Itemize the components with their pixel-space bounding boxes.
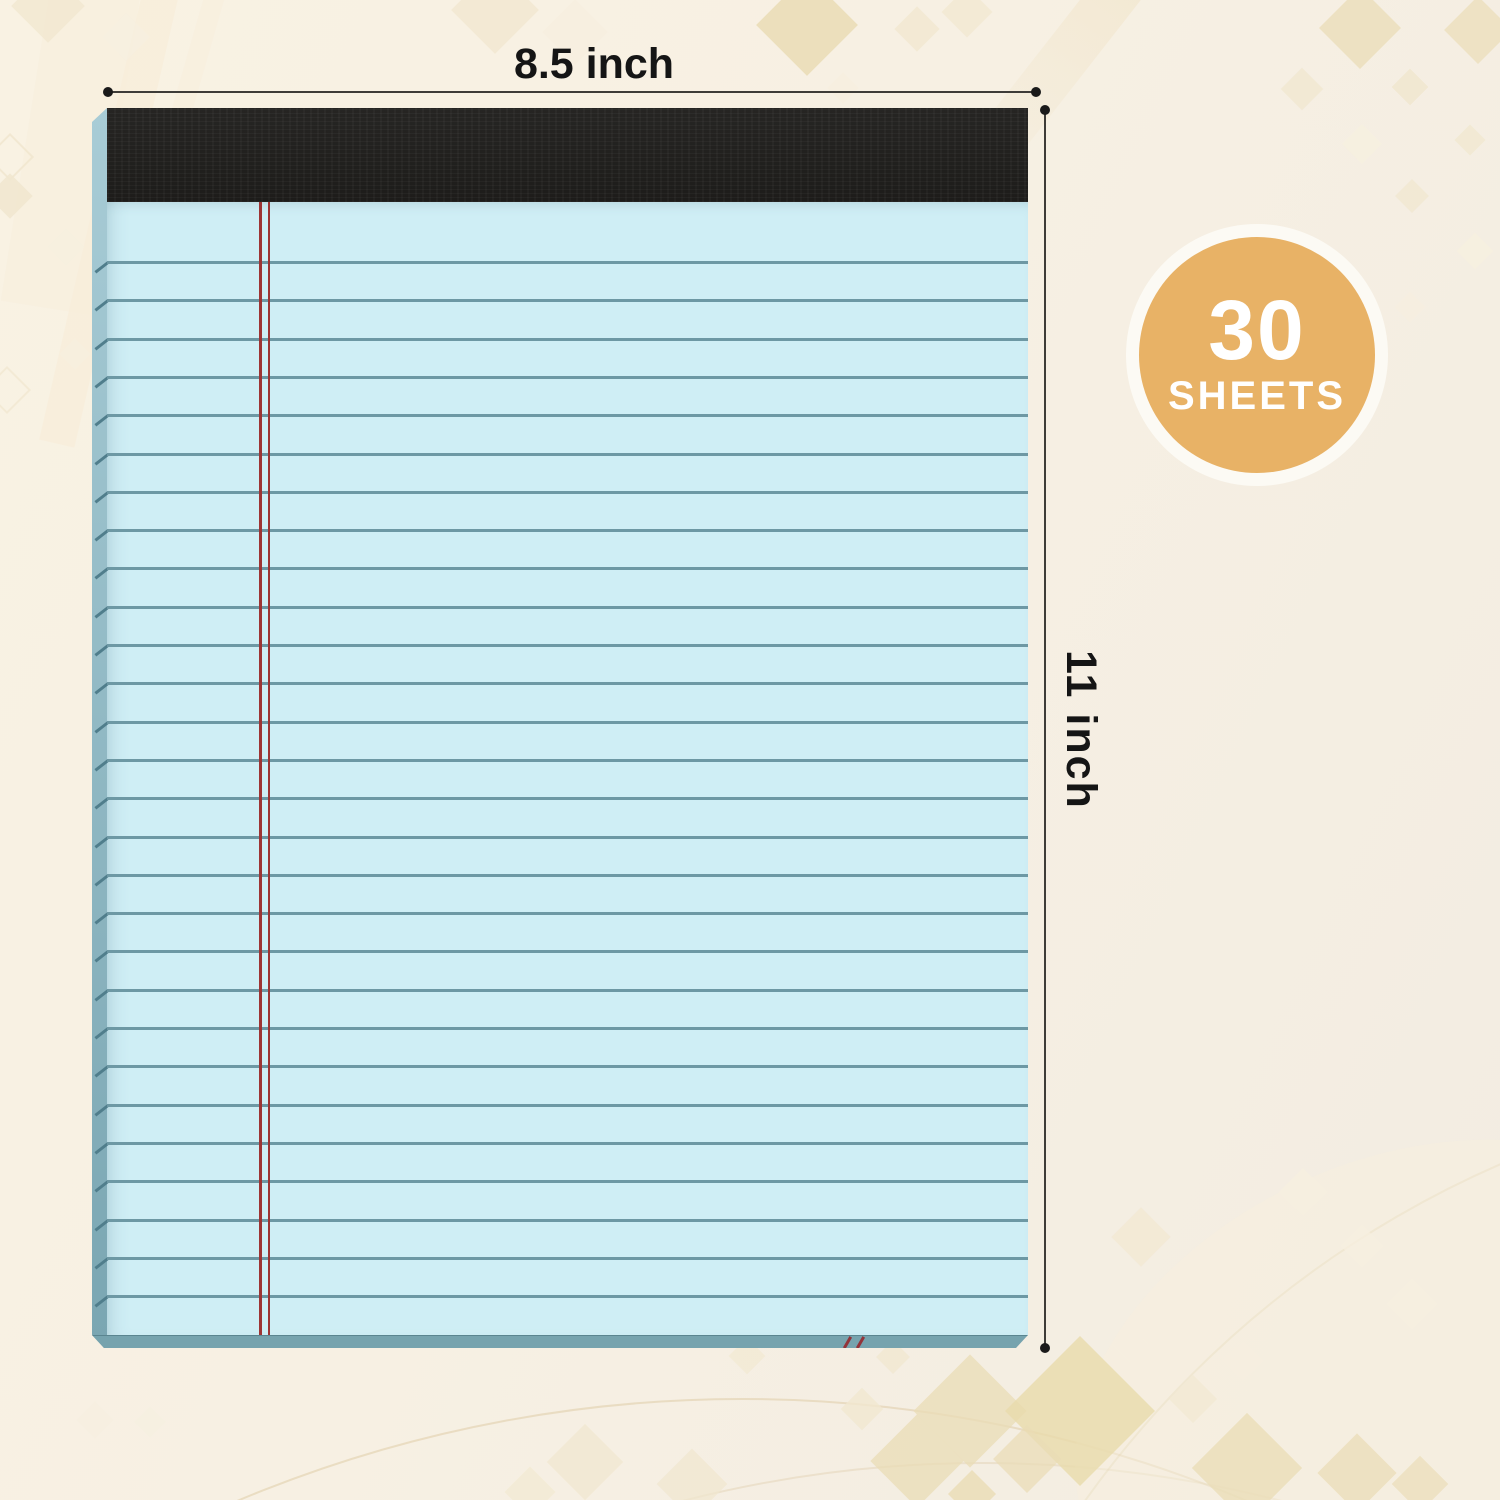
diamond-shape: [1223, 1341, 1263, 1381]
ruled-line: [107, 797, 1028, 800]
width-dimension-label: 8.5 inch: [130, 40, 1058, 89]
diamond-shape: [0, 173, 33, 218]
ruled-line: [107, 299, 1028, 302]
diamond-shape: [505, 1467, 556, 1500]
diamond-shape: [1341, 1225, 1383, 1267]
sheet-count-badge: 30 SHEETS: [1139, 237, 1375, 473]
diamond-shape: [0, 366, 31, 414]
ruled-line: [107, 376, 1028, 379]
ruled-line: [107, 1027, 1028, 1030]
ruled-line: [107, 338, 1028, 341]
diamond-shape: [11, 0, 85, 43]
diamond-shape: [942, 0, 993, 37]
diamond-shape: [1395, 179, 1429, 213]
diamond-shape: [1111, 1207, 1170, 1266]
diamond-shape: [0, 133, 34, 181]
ruled-line: [107, 529, 1028, 532]
ruled-line: [107, 950, 1028, 953]
diamond-shape: [948, 1470, 996, 1500]
dimension-endpoint-dot: [1040, 1343, 1050, 1353]
diamond-shape: [1444, 0, 1500, 64]
diamond-shape: [841, 1388, 883, 1430]
sheet-count-value: 30: [1208, 291, 1305, 371]
diamond-shape: [547, 1424, 623, 1500]
diamond-shape: [1169, 1375, 1217, 1423]
diamond-shape: [1112, 1326, 1149, 1363]
dimension-endpoint-dot: [1040, 105, 1050, 115]
height-dimension-label: 11 inch: [1056, 650, 1105, 810]
ruled-line: [107, 1065, 1028, 1068]
ruled-line: [107, 1257, 1028, 1260]
ruled-line: [107, 1295, 1028, 1298]
left-margin-rule: [268, 202, 270, 1335]
ruled-line: [107, 1104, 1028, 1107]
ruled-line: [107, 759, 1028, 762]
diamond-shape: [77, 1402, 114, 1439]
diamond-shape: [1279, 1168, 1327, 1216]
ruled-lines: [92, 108, 1028, 1348]
diamond-shape: [1317, 1433, 1396, 1500]
ruled-line: [107, 836, 1028, 839]
ruled-line: [107, 606, 1028, 609]
ruled-line: [107, 721, 1028, 724]
diamond-shape: [134, 1406, 165, 1437]
ruled-line: [107, 912, 1028, 915]
diamond-shape: [1387, 1279, 1438, 1330]
ruled-line: [107, 682, 1028, 685]
sheet-count-unit: SHEETS: [1168, 374, 1346, 419]
ruled-line: [107, 414, 1028, 417]
ruled-line: [107, 453, 1028, 456]
diamond-shape: [1281, 68, 1323, 110]
ruled-line: [107, 989, 1028, 992]
diamond-shape: [1394, 291, 1425, 322]
ruled-line: [107, 567, 1028, 570]
ruled-line: [107, 1142, 1028, 1145]
ruled-line: [107, 1219, 1028, 1222]
dimension-endpoint-dot: [103, 87, 113, 97]
diamond-shape: [1454, 124, 1485, 155]
ruled-line: [107, 644, 1028, 647]
height-dimension-line: [1044, 110, 1046, 1348]
diamond-shape: [48, 229, 85, 266]
width-dimension-line: [108, 91, 1036, 93]
ruled-line: [107, 1180, 1028, 1183]
diamond-shape: [1457, 233, 1494, 270]
ruled-line: [107, 874, 1028, 877]
diamond-shape: [1392, 1456, 1449, 1500]
diamond-shape: [1392, 69, 1429, 106]
ruled-line: [107, 261, 1028, 264]
notepad: [92, 108, 1028, 1348]
diamond-shape: [1342, 124, 1382, 164]
diamond-shape: [1319, 0, 1401, 69]
product-image-canvas: 8.5 inch 11 inch 30 SHEETS: [0, 0, 1500, 1500]
ruled-line: [107, 491, 1028, 494]
diamond-shape: [59, 338, 90, 369]
left-margin-rule: [259, 202, 262, 1335]
diamond-shape: [657, 1449, 728, 1500]
diamond-shape: [1192, 1413, 1302, 1500]
